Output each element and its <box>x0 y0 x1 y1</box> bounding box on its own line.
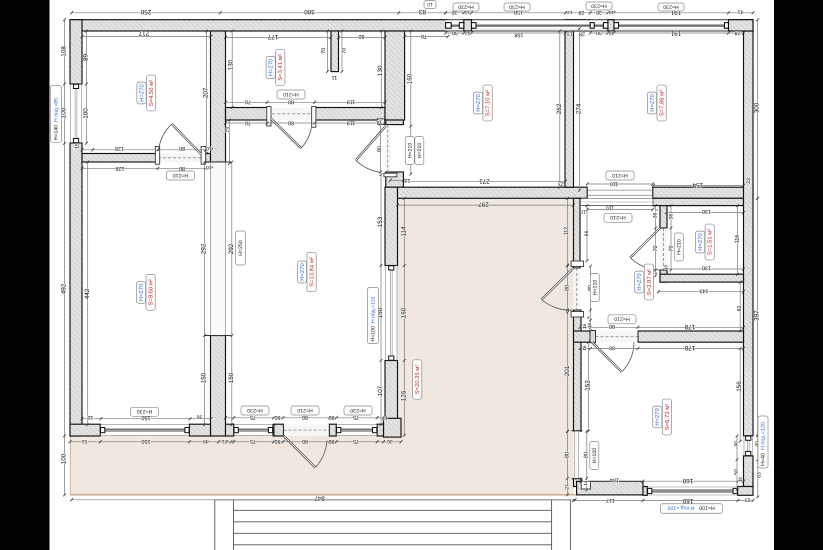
svg-text:80: 80 <box>329 438 335 444</box>
svg-text:10: 10 <box>206 145 212 151</box>
svg-text:130: 130 <box>702 208 711 214</box>
svg-text:80: 80 <box>359 33 365 39</box>
svg-text:S=13.84 м²: S=13.84 м² <box>308 257 315 287</box>
svg-text:89: 89 <box>83 54 90 62</box>
svg-text:14: 14 <box>377 119 383 125</box>
svg-text:143: 143 <box>700 287 709 293</box>
svg-text:16: 16 <box>582 324 587 330</box>
svg-text:18: 18 <box>74 143 80 149</box>
svg-text:H=270: H=270 <box>475 94 482 112</box>
svg-text:23: 23 <box>745 496 751 502</box>
svg-text:13: 13 <box>567 10 573 15</box>
svg-text:80: 80 <box>275 438 281 444</box>
svg-text:10: 10 <box>427 1 433 7</box>
svg-text:80: 80 <box>609 345 615 351</box>
svg-text:22: 22 <box>405 177 411 183</box>
svg-text:H=270: H=270 <box>138 283 145 301</box>
svg-text:H=210: H=210 <box>592 280 598 296</box>
svg-text:300: 300 <box>754 102 761 113</box>
svg-text:119: 119 <box>347 120 356 126</box>
svg-text:160: 160 <box>407 73 414 84</box>
svg-text:80: 80 <box>288 99 294 105</box>
svg-text:H=210: H=210 <box>417 143 423 159</box>
svg-text:80: 80 <box>377 146 383 152</box>
svg-text:80: 80 <box>565 452 571 458</box>
svg-text:S=3.41 м²: S=3.41 м² <box>277 54 284 81</box>
svg-text:H=230: H=230 <box>591 2 607 8</box>
svg-text:H=140 H под.=85: H=140 H под.=85 <box>54 98 60 140</box>
svg-text:H=210: H=210 <box>610 214 626 220</box>
svg-text:150: 150 <box>142 438 151 444</box>
svg-text:S=1.51 м²: S=1.51 м² <box>707 229 714 256</box>
svg-text:H=100: H=100 <box>699 504 715 510</box>
svg-text:80: 80 <box>329 414 335 420</box>
svg-text:H=210: H=210 <box>614 316 630 322</box>
svg-text:82: 82 <box>737 306 743 312</box>
svg-text:250: 250 <box>140 8 151 15</box>
svg-text:H=210: H=210 <box>612 172 628 178</box>
svg-text:H=270: H=270 <box>138 84 145 102</box>
svg-text:10: 10 <box>580 209 586 214</box>
svg-text:30: 30 <box>387 438 393 444</box>
svg-text:13: 13 <box>567 31 573 37</box>
svg-text:30: 30 <box>452 30 458 36</box>
svg-text:S=20.35 м²: S=20.35 м² <box>414 365 421 395</box>
svg-text:150: 150 <box>228 372 235 383</box>
svg-text:70: 70 <box>321 48 327 54</box>
svg-text:80: 80 <box>584 452 590 458</box>
svg-text:H=100 H под.=110: H=100 H под.=110 <box>371 297 377 342</box>
svg-text:150: 150 <box>201 372 208 383</box>
svg-text:23: 23 <box>558 181 564 187</box>
svg-text:201: 201 <box>564 365 571 376</box>
svg-text:51: 51 <box>82 438 88 444</box>
svg-text:83: 83 <box>419 8 427 15</box>
svg-text:S=9.60 м²: S=9.60 м² <box>147 279 154 306</box>
svg-text:36: 36 <box>668 214 674 220</box>
svg-text:50: 50 <box>734 469 740 475</box>
svg-text:H=100: H=100 <box>592 448 598 464</box>
svg-text:178: 178 <box>684 323 695 330</box>
svg-text:S=3.97 м²: S=3.97 м² <box>646 269 653 296</box>
svg-text:S=7.10 м²: S=7.10 м² <box>484 90 491 117</box>
svg-text:70: 70 <box>421 33 427 39</box>
svg-text:H=270: H=270 <box>636 273 643 291</box>
svg-text:292: 292 <box>228 243 235 254</box>
svg-text:H=230: H=230 <box>663 3 679 9</box>
svg-text:28: 28 <box>735 30 741 36</box>
svg-text:S=4.50 м²: S=4.50 м² <box>148 80 155 107</box>
svg-text:41: 41 <box>738 8 744 14</box>
svg-text:274: 274 <box>576 103 583 114</box>
svg-text:11: 11 <box>382 415 387 421</box>
svg-text:H=210: H=210 <box>407 143 413 159</box>
svg-text:300: 300 <box>304 8 315 15</box>
svg-text:153: 153 <box>377 216 384 227</box>
svg-text:847: 847 <box>314 495 325 502</box>
svg-text:H=270: H=270 <box>649 94 656 112</box>
svg-text:217: 217 <box>138 29 149 36</box>
svg-text:10: 10 <box>738 477 743 483</box>
svg-text:156: 156 <box>736 381 743 392</box>
svg-text:114: 114 <box>400 226 407 237</box>
svg-text:70: 70 <box>245 120 251 126</box>
svg-text:112: 112 <box>563 227 569 236</box>
svg-text:158: 158 <box>515 32 524 38</box>
svg-text:104: 104 <box>610 477 619 483</box>
svg-text:H=270: H=270 <box>654 408 661 426</box>
svg-text:75: 75 <box>353 438 359 444</box>
svg-text:128: 128 <box>115 145 124 151</box>
svg-text:28: 28 <box>579 31 585 37</box>
svg-text:H=40 H под.=120: H=40 H под.=120 <box>761 422 767 466</box>
svg-text:H=250: H=250 <box>238 240 244 256</box>
svg-text:297: 297 <box>478 201 489 208</box>
svg-text:154: 154 <box>692 181 703 188</box>
svg-text:30: 30 <box>596 30 602 36</box>
svg-text:63: 63 <box>757 472 763 478</box>
svg-text:100: 100 <box>83 108 90 119</box>
svg-text:H=210: H=210 <box>173 172 189 178</box>
svg-text:H=210: H=210 <box>283 91 299 97</box>
svg-text:116: 116 <box>734 235 740 244</box>
svg-text:5: 5 <box>587 316 592 319</box>
svg-text:152: 152 <box>584 380 591 391</box>
svg-text:14: 14 <box>583 480 588 486</box>
svg-text:35: 35 <box>197 414 203 420</box>
svg-text:49: 49 <box>203 438 209 444</box>
svg-text:11: 11 <box>332 74 338 80</box>
svg-text:S=6.73 м²: S=6.73 м² <box>664 404 671 431</box>
svg-text:110: 110 <box>606 205 615 211</box>
svg-text:128: 128 <box>116 165 125 171</box>
svg-text:S=7.86 м²: S=7.86 м² <box>658 90 665 117</box>
svg-text:117: 117 <box>606 497 615 503</box>
svg-text:262: 262 <box>556 103 563 114</box>
svg-text:108: 108 <box>61 46 68 57</box>
svg-text:397: 397 <box>754 310 761 321</box>
svg-text:36: 36 <box>653 213 659 219</box>
svg-text:75: 75 <box>250 438 256 444</box>
svg-text:178: 178 <box>684 344 695 351</box>
svg-text:H=230: H=230 <box>458 3 474 9</box>
svg-text:73: 73 <box>226 127 232 133</box>
svg-text:80: 80 <box>288 120 294 126</box>
svg-text:80: 80 <box>179 165 185 171</box>
svg-text:80: 80 <box>275 414 281 420</box>
svg-text:66: 66 <box>584 230 590 236</box>
svg-text:2: 2 <box>225 439 228 444</box>
svg-text:80: 80 <box>564 285 570 291</box>
svg-text:80: 80 <box>179 145 185 151</box>
svg-text:32: 32 <box>88 414 94 420</box>
svg-text:23: 23 <box>746 178 752 184</box>
svg-text:10: 10 <box>609 10 615 15</box>
svg-text:160: 160 <box>682 477 693 484</box>
svg-text:H=270: H=270 <box>268 58 275 76</box>
svg-text:70: 70 <box>668 246 674 252</box>
svg-text:H=230: H=230 <box>350 407 366 413</box>
svg-text:130: 130 <box>228 59 235 70</box>
svg-text:10: 10 <box>206 164 212 170</box>
svg-text:H=230: H=230 <box>137 408 153 414</box>
svg-text:16: 16 <box>587 323 592 329</box>
svg-text:119: 119 <box>347 99 356 105</box>
svg-text:126: 126 <box>400 390 407 401</box>
svg-text:130: 130 <box>377 65 384 76</box>
svg-text:292: 292 <box>201 243 208 254</box>
svg-text:110: 110 <box>610 181 619 187</box>
svg-text:27: 27 <box>565 484 571 490</box>
svg-text:177: 177 <box>267 33 278 40</box>
svg-text:40: 40 <box>734 441 740 447</box>
svg-text:70: 70 <box>653 246 659 252</box>
svg-text:271: 271 <box>479 177 490 184</box>
svg-text:160: 160 <box>400 307 407 318</box>
svg-text:10: 10 <box>609 31 615 36</box>
svg-text:28: 28 <box>579 9 585 15</box>
svg-text:16: 16 <box>582 345 587 351</box>
svg-text:H=270: H=270 <box>697 233 704 251</box>
svg-text:H=210: H=210 <box>297 407 313 413</box>
svg-text:70: 70 <box>245 99 251 105</box>
svg-text:107: 107 <box>377 385 384 396</box>
svg-text:H=270: H=270 <box>299 263 306 281</box>
svg-text:100: 100 <box>61 453 68 464</box>
svg-text:191: 191 <box>670 29 681 36</box>
svg-text:H под.=100: H под.=100 <box>667 504 694 510</box>
svg-text:H=230: H=230 <box>509 3 525 9</box>
svg-text:H=230: H=230 <box>247 407 263 413</box>
svg-text:10: 10 <box>664 265 669 271</box>
svg-text:492: 492 <box>61 283 68 294</box>
svg-text:442: 442 <box>84 288 91 299</box>
svg-text:130: 130 <box>702 265 711 271</box>
svg-text:80: 80 <box>302 438 308 444</box>
svg-text:H=210: H=210 <box>676 239 682 255</box>
svg-text:160: 160 <box>682 497 693 504</box>
svg-text:70: 70 <box>341 48 347 54</box>
svg-text:13: 13 <box>465 31 471 36</box>
svg-text:207: 207 <box>202 87 209 98</box>
